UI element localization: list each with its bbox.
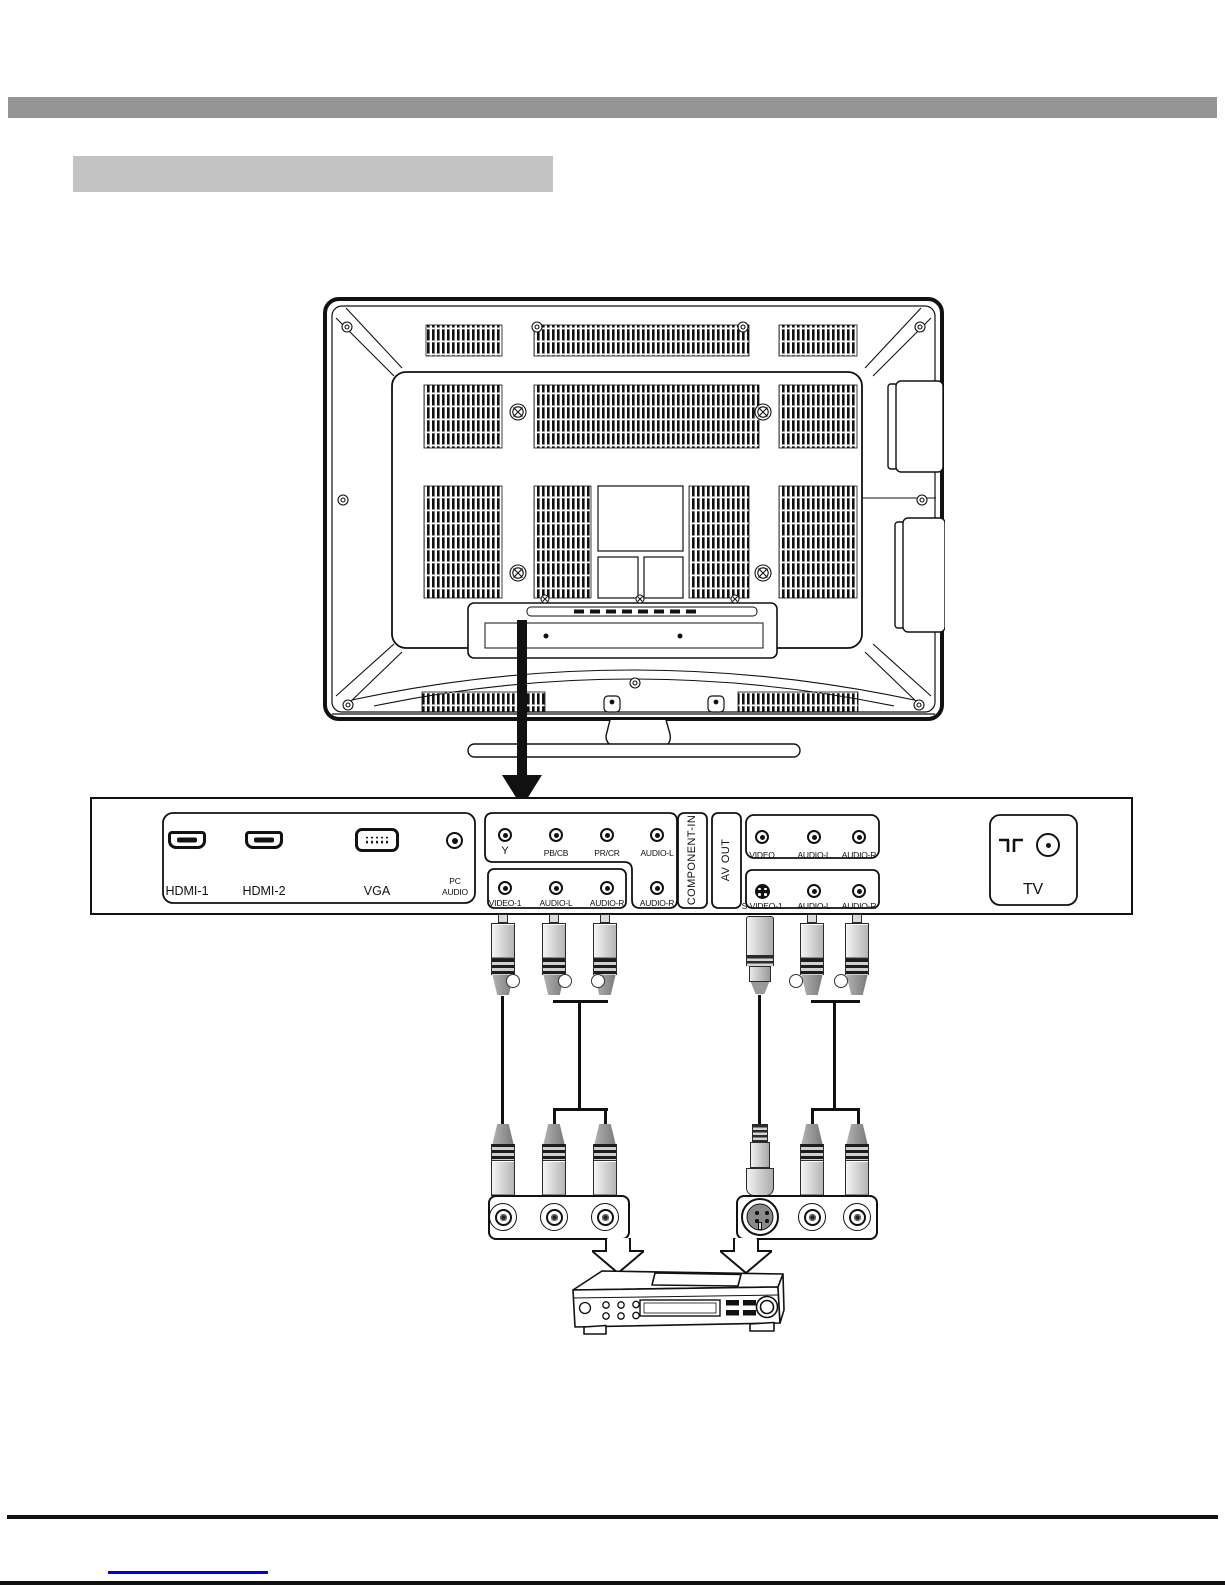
pc-audio-jack-icon xyxy=(446,832,463,849)
hdmi2-connector-icon xyxy=(245,831,283,849)
vga-connector-icon xyxy=(355,828,399,852)
avout-b-audio-r-jack xyxy=(852,884,866,898)
tv-label: TV xyxy=(1023,881,1043,899)
pc-audio-label-1: PC xyxy=(449,876,460,886)
component-pb-jack xyxy=(549,828,563,842)
av-device-illustration xyxy=(560,1258,795,1342)
hdmi1-connector-icon xyxy=(168,831,206,849)
avout-audio-r-jack xyxy=(852,830,866,844)
pc-audio-label-2: AUDIO xyxy=(442,887,468,897)
avout-b-audio-l-jack xyxy=(807,884,821,898)
avout-audio-r-label: AUDIO-R xyxy=(842,850,877,860)
component-pr-label: PR/CR xyxy=(594,848,619,858)
rca-plug xyxy=(845,914,869,995)
component-pb-label: PB/CB xyxy=(544,848,569,858)
device-audio-r-jack xyxy=(843,1203,871,1231)
cable-wire xyxy=(604,1108,607,1125)
antenna-icon xyxy=(997,837,1025,854)
component-audio-r-label: AUDIO-R xyxy=(640,898,675,908)
device-svideo-jack xyxy=(741,1198,779,1236)
component-y-jack xyxy=(498,828,512,842)
svideo-plug-down xyxy=(745,1124,775,1196)
cable-ring xyxy=(591,974,605,988)
avout-b-audio-r-label: AUDIO-R xyxy=(842,901,877,911)
video1-audio-r-label: AUDIO-R xyxy=(590,898,625,908)
rca-plug xyxy=(800,914,824,995)
cable-wire xyxy=(857,1108,860,1125)
device-audio-r-jack xyxy=(591,1203,619,1231)
avout-svideo-label: S-VIDEO-1 xyxy=(742,901,783,911)
cable-wire xyxy=(553,1108,556,1125)
manual-page: HDMI-1 HDMI-2 VGA PC AUDIO Y PB/CB PR/CR… xyxy=(0,0,1225,1585)
antenna-coax-jack xyxy=(1036,833,1060,857)
cable-ring xyxy=(506,974,520,988)
component-pr-jack xyxy=(600,828,614,842)
video1-label: VIDEO-1 xyxy=(489,898,522,908)
component-audio-r-jack xyxy=(650,881,664,895)
video1-audio-l-jack xyxy=(549,881,563,895)
cable-wire xyxy=(811,1108,814,1125)
cable-wire xyxy=(501,996,504,1124)
device-audio-l-jack xyxy=(540,1203,568,1231)
video1-audio-r-jack xyxy=(600,881,614,895)
section-title-box xyxy=(73,156,553,192)
page-bottom-edge xyxy=(0,1581,1225,1585)
avout-svideo-jack xyxy=(755,884,770,899)
connection-arrow-shaft xyxy=(517,620,527,778)
footer-link-underline[interactable] xyxy=(108,1571,268,1574)
avout-b-audio-l-label: AUDIO-L xyxy=(797,901,830,911)
component-y-label: Y xyxy=(501,845,508,857)
rear-connection-panel: HDMI-1 HDMI-2 VGA PC AUDIO Y PB/CB PR/CR… xyxy=(90,797,1133,915)
cable-wire xyxy=(758,995,761,1124)
device-audio-l-jack xyxy=(798,1203,826,1231)
avout-audio-l-jack xyxy=(807,830,821,844)
cable-wire xyxy=(811,1108,860,1111)
avout-audio-l-label: AUDIO-L xyxy=(797,850,830,860)
avout-video-jack xyxy=(755,830,769,844)
component-audio-l-jack xyxy=(650,828,664,842)
cable-ring xyxy=(789,974,803,988)
page-header-bar xyxy=(8,97,1217,118)
video1-audio-l-label: AUDIO-L xyxy=(539,898,572,908)
tv-rear-illustration xyxy=(322,296,945,762)
footer-rule xyxy=(7,1515,1218,1519)
component-audio-l-label: AUDIO-L xyxy=(640,848,673,858)
hdmi2-label: HDMI-2 xyxy=(242,884,285,898)
cable-wire xyxy=(578,1000,581,1111)
avout-video-label: VIDEO xyxy=(749,850,774,860)
device-video-jack xyxy=(489,1203,517,1231)
cable-ring xyxy=(558,974,572,988)
vga-label: VGA xyxy=(364,884,390,898)
av-out-strip-label: AV OUT xyxy=(720,839,732,882)
svideo-plug xyxy=(746,916,774,994)
cable-wire xyxy=(553,1108,608,1111)
cable-ring xyxy=(834,974,848,988)
component-in-strip-label: COMPONENT-IN xyxy=(686,815,698,905)
cable-wire xyxy=(833,1000,836,1111)
video1-jack xyxy=(498,881,512,895)
hdmi1-label: HDMI-1 xyxy=(165,884,208,898)
